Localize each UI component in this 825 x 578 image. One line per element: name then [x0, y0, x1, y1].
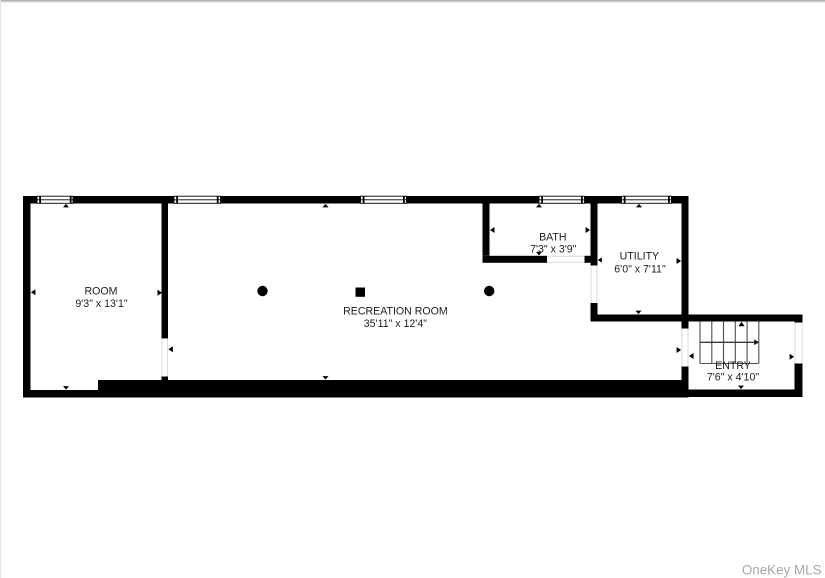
svg-text:35'11" x 12'4": 35'11" x 12'4"	[364, 318, 427, 330]
svg-text:OneKey MLS: OneKey MLS	[742, 562, 822, 577]
svg-text:9'3" x 13'1": 9'3" x 13'1"	[75, 298, 127, 310]
svg-text:ROOM: ROOM	[85, 286, 118, 298]
svg-text:UTILITY: UTILITY	[620, 251, 659, 263]
svg-text:RECREATION ROOM: RECREATION ROOM	[343, 306, 448, 318]
svg-text:6'0" x 7'11": 6'0" x 7'11"	[614, 263, 666, 275]
svg-text:7'3" x 3'9": 7'3" x 3'9"	[530, 244, 577, 256]
svg-text:ENTRY: ENTRY	[715, 360, 751, 372]
svg-text:BATH: BATH	[539, 232, 566, 244]
svg-text:7'6" x 4'10": 7'6" x 4'10"	[707, 371, 759, 383]
